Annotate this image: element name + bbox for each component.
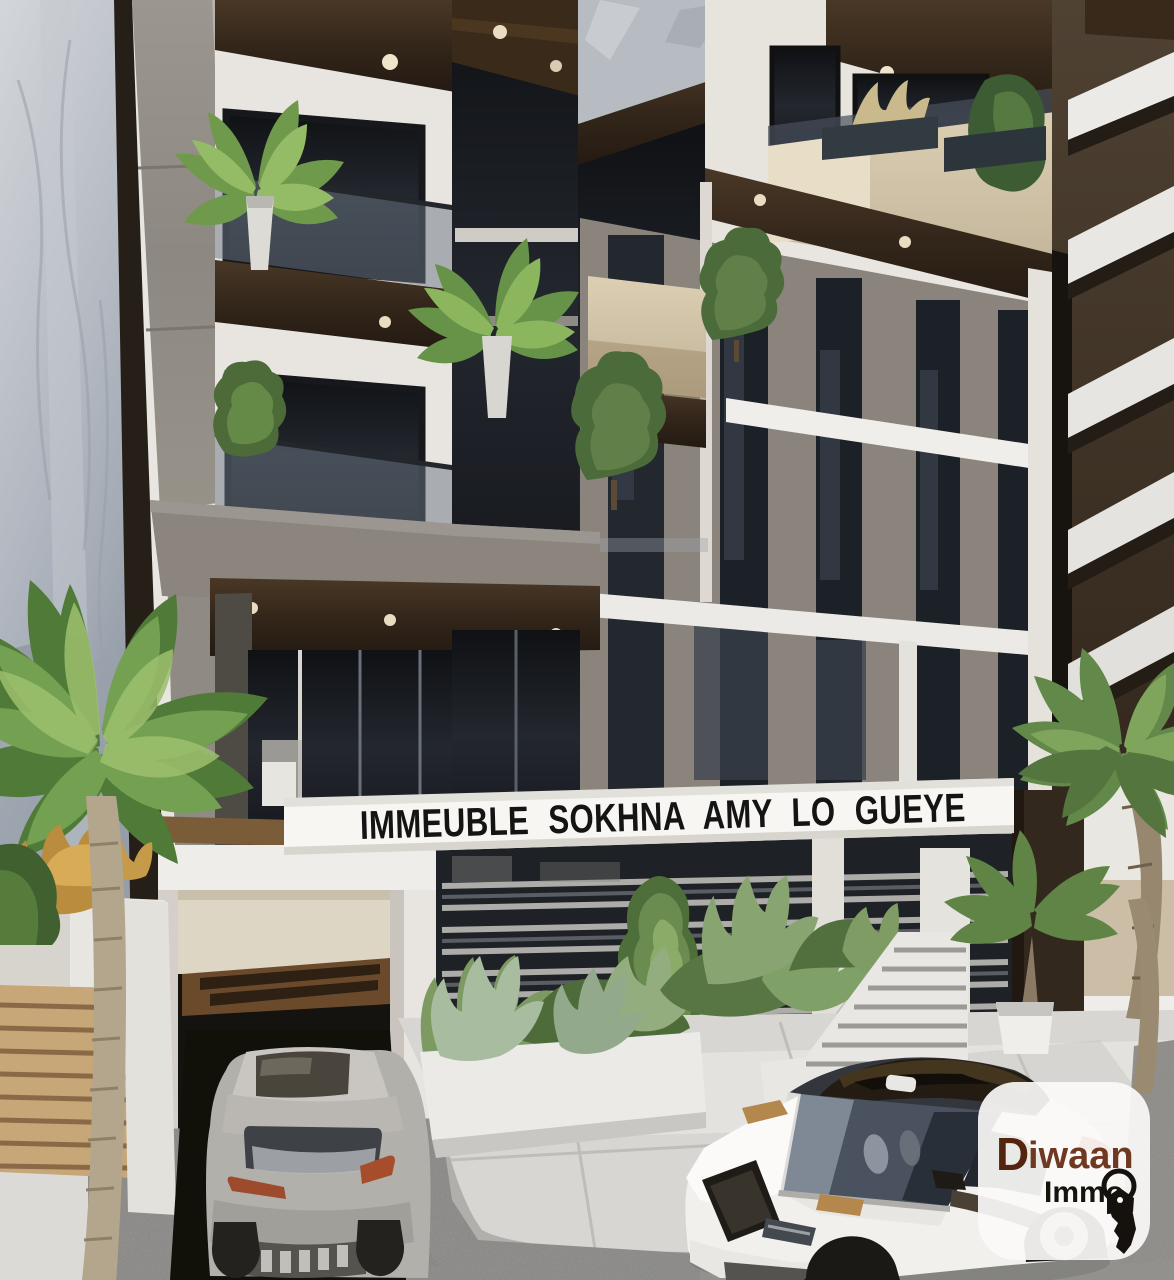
svg-text:D: D	[996, 1128, 1029, 1180]
